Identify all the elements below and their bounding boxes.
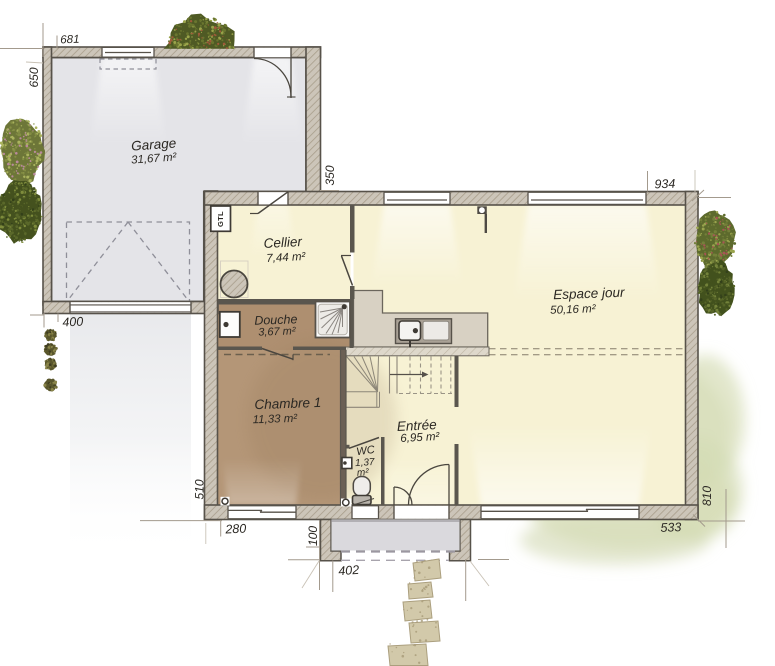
- svg-text:Garage: Garage: [131, 135, 177, 153]
- svg-text:Espace jour: Espace jour: [553, 285, 625, 302]
- svg-text:GTL: GTL: [216, 211, 225, 227]
- svg-text:350: 350: [323, 165, 337, 185]
- svg-text:6,95 m²: 6,95 m²: [400, 431, 441, 445]
- svg-text:402: 402: [338, 563, 360, 578]
- svg-text:3,67 m²: 3,67 m²: [258, 325, 296, 338]
- svg-text:934: 934: [654, 177, 675, 192]
- svg-text:533: 533: [660, 520, 681, 535]
- svg-text:7,44 m²: 7,44 m²: [266, 251, 307, 265]
- svg-text:810: 810: [700, 486, 714, 506]
- svg-text:400: 400: [62, 314, 84, 329]
- svg-text:50,16 m²: 50,16 m²: [550, 303, 597, 317]
- svg-text:100: 100: [306, 526, 320, 546]
- svg-text:m²: m²: [357, 467, 370, 479]
- svg-text:681: 681: [60, 34, 80, 47]
- svg-text:650: 650: [27, 67, 41, 87]
- svg-text:510: 510: [193, 479, 207, 499]
- svg-text:11,33 m²: 11,33 m²: [252, 413, 298, 427]
- svg-text:280: 280: [224, 521, 247, 536]
- svg-text:Chambre 1: Chambre 1: [254, 395, 321, 412]
- svg-text:Cellier: Cellier: [263, 234, 302, 251]
